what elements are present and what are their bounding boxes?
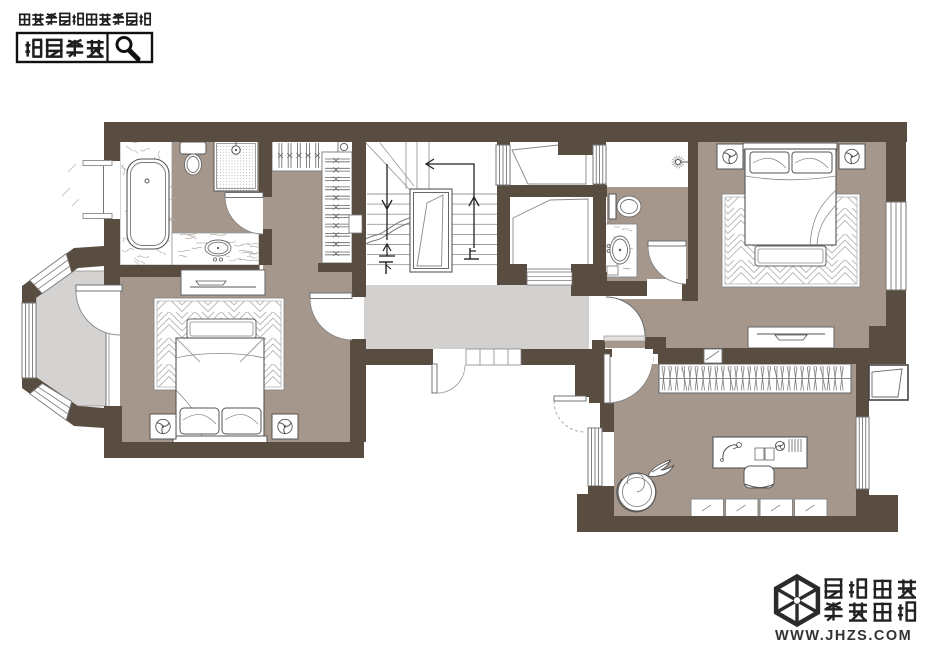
svg-text:WWW.JHZS.COM: WWW.JHZS.COM xyxy=(775,628,912,644)
